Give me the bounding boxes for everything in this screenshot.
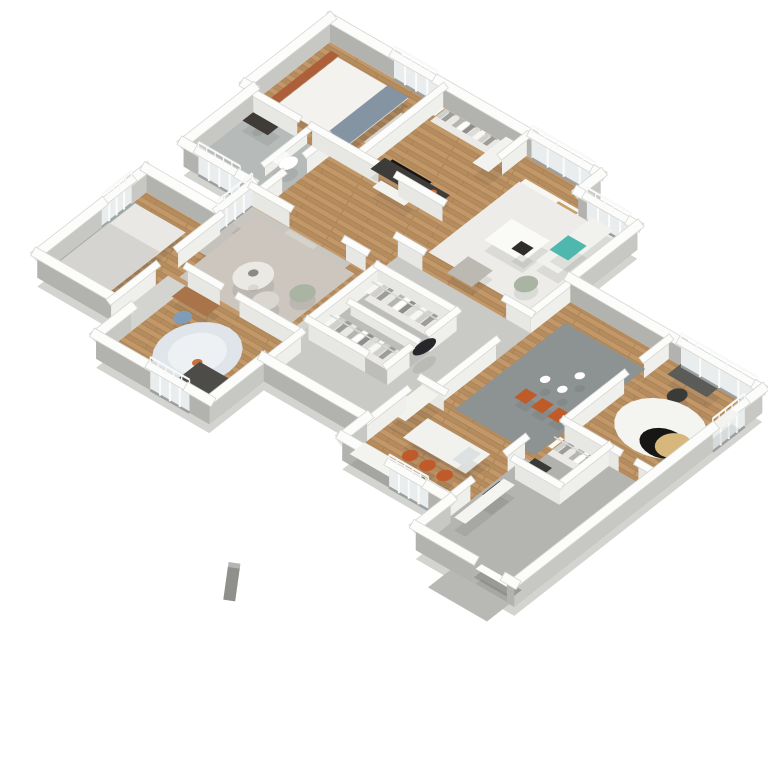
floorplan-3d-render: [0, 0, 768, 768]
floorplan-page: [0, 0, 768, 768]
exterior-wall-16: [507, 579, 514, 607]
outdoor-pillar: [223, 566, 240, 601]
wall-top: [507, 579, 514, 583]
